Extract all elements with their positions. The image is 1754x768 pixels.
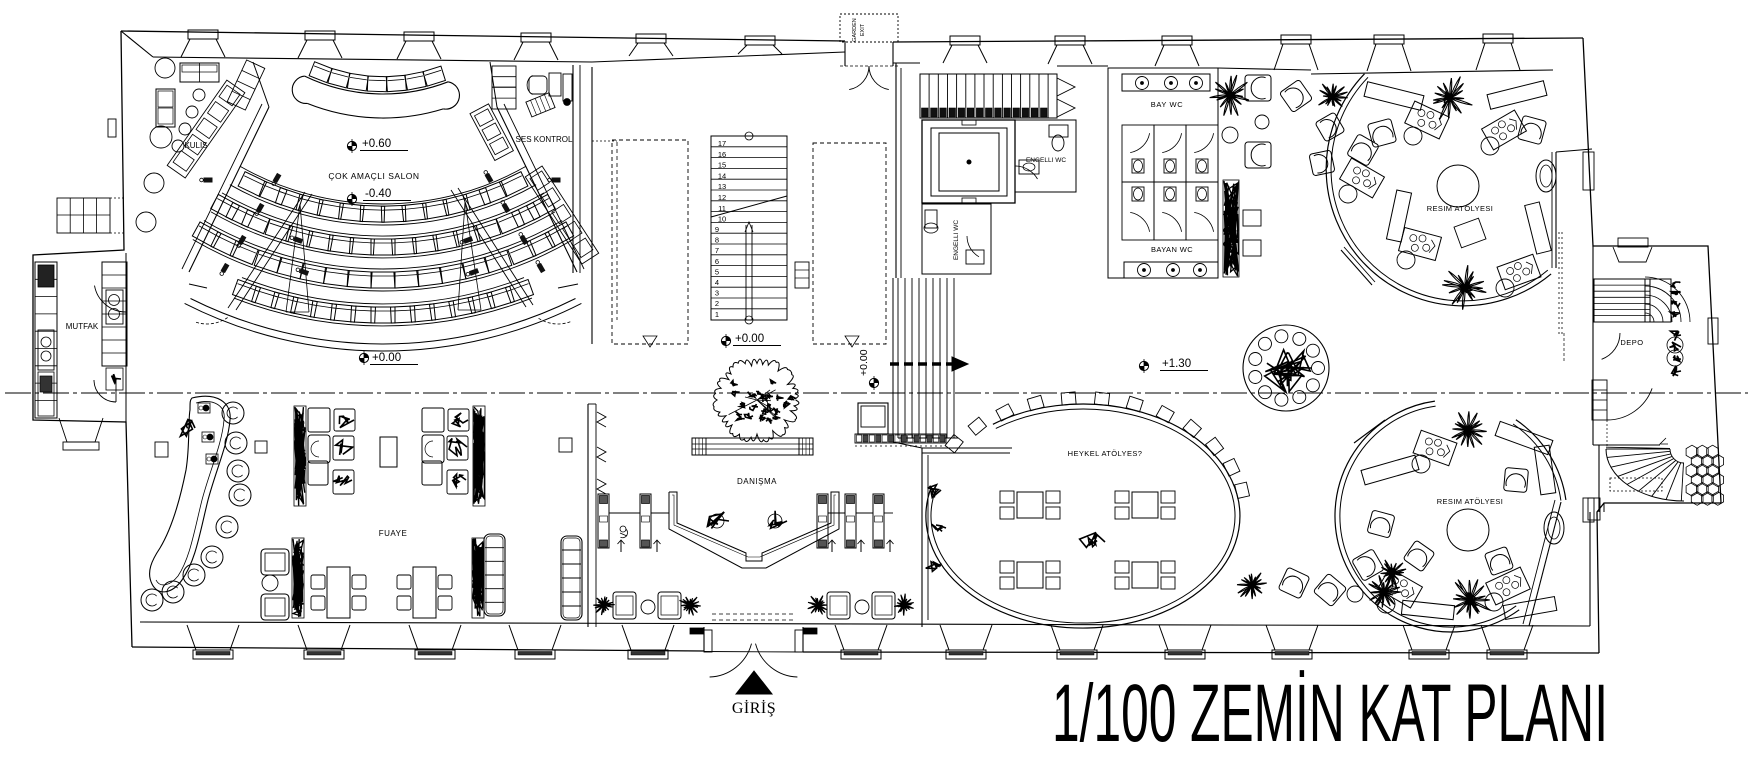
svg-text:4: 4 bbox=[715, 278, 719, 287]
svg-text:15: 15 bbox=[718, 161, 726, 170]
svg-text:GİRİŞ: GİRİŞ bbox=[732, 699, 776, 717]
svg-text:1/100 ZEMİN KAT PLANI: 1/100 ZEMİN KAT PLANI bbox=[1052, 668, 1608, 759]
svg-text:BAY WC: BAY WC bbox=[1151, 100, 1184, 109]
svg-text:RESIM ATÖLYESI: RESIM ATÖLYESI bbox=[1427, 204, 1494, 213]
svg-text:17: 17 bbox=[718, 139, 726, 148]
svg-text:DEPO: DEPO bbox=[1620, 338, 1643, 347]
svg-text:+0.00: +0.00 bbox=[735, 333, 764, 345]
svg-text:5: 5 bbox=[715, 267, 719, 276]
svg-text:9: 9 bbox=[715, 225, 719, 234]
svg-text:14: 14 bbox=[718, 171, 726, 180]
svg-text:FUAYE: FUAYE bbox=[379, 529, 408, 538]
svg-text:ÇOK AMAÇLI SALON: ÇOK AMAÇLI SALON bbox=[328, 171, 419, 181]
svg-text:EXIT: EXIT bbox=[860, 23, 866, 36]
svg-text:3: 3 bbox=[715, 289, 719, 298]
svg-text:10: 10 bbox=[718, 215, 726, 224]
svg-text:12: 12 bbox=[718, 193, 726, 202]
svg-text:+0.60: +0.60 bbox=[362, 138, 391, 150]
svg-text:SES KONTROL: SES KONTROL bbox=[516, 135, 573, 144]
svg-text:KULIS: KULIS bbox=[184, 141, 207, 150]
svg-text:7: 7 bbox=[715, 246, 719, 255]
svg-text:MUTFAK: MUTFAK bbox=[66, 322, 99, 331]
svg-text:DANIŞMA: DANIŞMA bbox=[737, 477, 777, 486]
svg-text:6: 6 bbox=[715, 257, 719, 266]
svg-text:ENGELLI WC: ENGELLI WC bbox=[953, 220, 960, 260]
svg-text:-0.40: -0.40 bbox=[365, 188, 391, 200]
svg-text:GARDEN: GARDEN bbox=[852, 18, 858, 42]
svg-text:13: 13 bbox=[718, 182, 726, 191]
svg-text:ENGELLI WC: ENGELLI WC bbox=[1026, 157, 1066, 164]
svg-text:16: 16 bbox=[718, 150, 726, 159]
svg-text:RESIM ATÖLYESI: RESIM ATÖLYESI bbox=[1437, 497, 1504, 506]
svg-text:1: 1 bbox=[715, 310, 719, 319]
svg-text:BAYAN WC: BAYAN WC bbox=[1151, 245, 1193, 254]
svg-text:8: 8 bbox=[715, 236, 719, 245]
svg-text:+0.00: +0.00 bbox=[372, 352, 401, 364]
svg-text:+1.30: +1.30 bbox=[1162, 358, 1191, 370]
svg-text:HEYKEL ATÖLYES?: HEYKEL ATÖLYES? bbox=[1068, 449, 1143, 458]
svg-text:11: 11 bbox=[718, 204, 726, 213]
svg-text:+0.00: +0.00 bbox=[858, 349, 870, 376]
svg-text:2: 2 bbox=[715, 299, 719, 308]
